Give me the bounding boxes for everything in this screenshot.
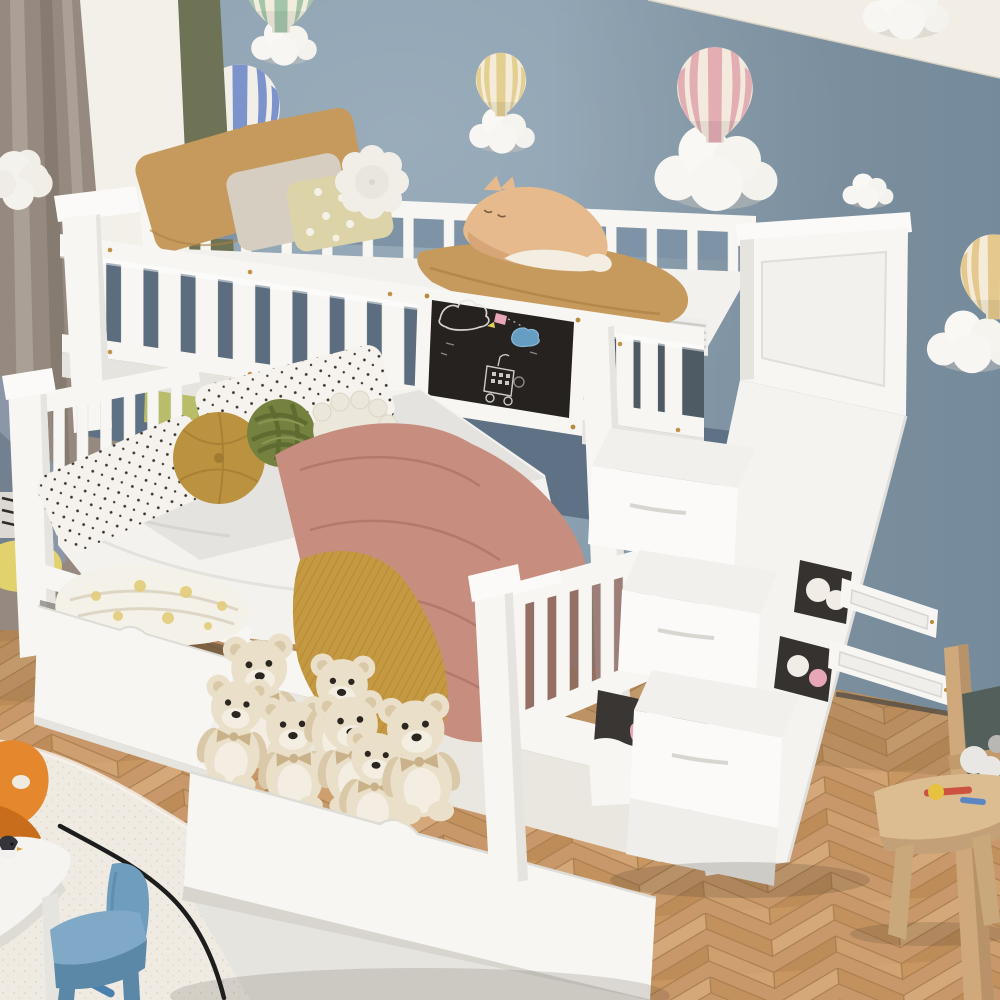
rail-slat	[196, 272, 218, 361]
rail-slat	[665, 340, 682, 419]
chalk-drawing-blue-cloud	[512, 328, 540, 347]
flower-pillow	[335, 145, 409, 219]
rail-slat	[159, 266, 181, 355]
rail-slat	[403, 216, 413, 263]
rail-slat	[233, 277, 255, 366]
rail-slat	[687, 228, 697, 275]
rail-slat	[270, 283, 292, 372]
rail-slat	[728, 230, 738, 277]
rail-slat	[641, 337, 658, 416]
rail-slat	[121, 261, 143, 350]
bedroom-scene	[0, 0, 1000, 1000]
